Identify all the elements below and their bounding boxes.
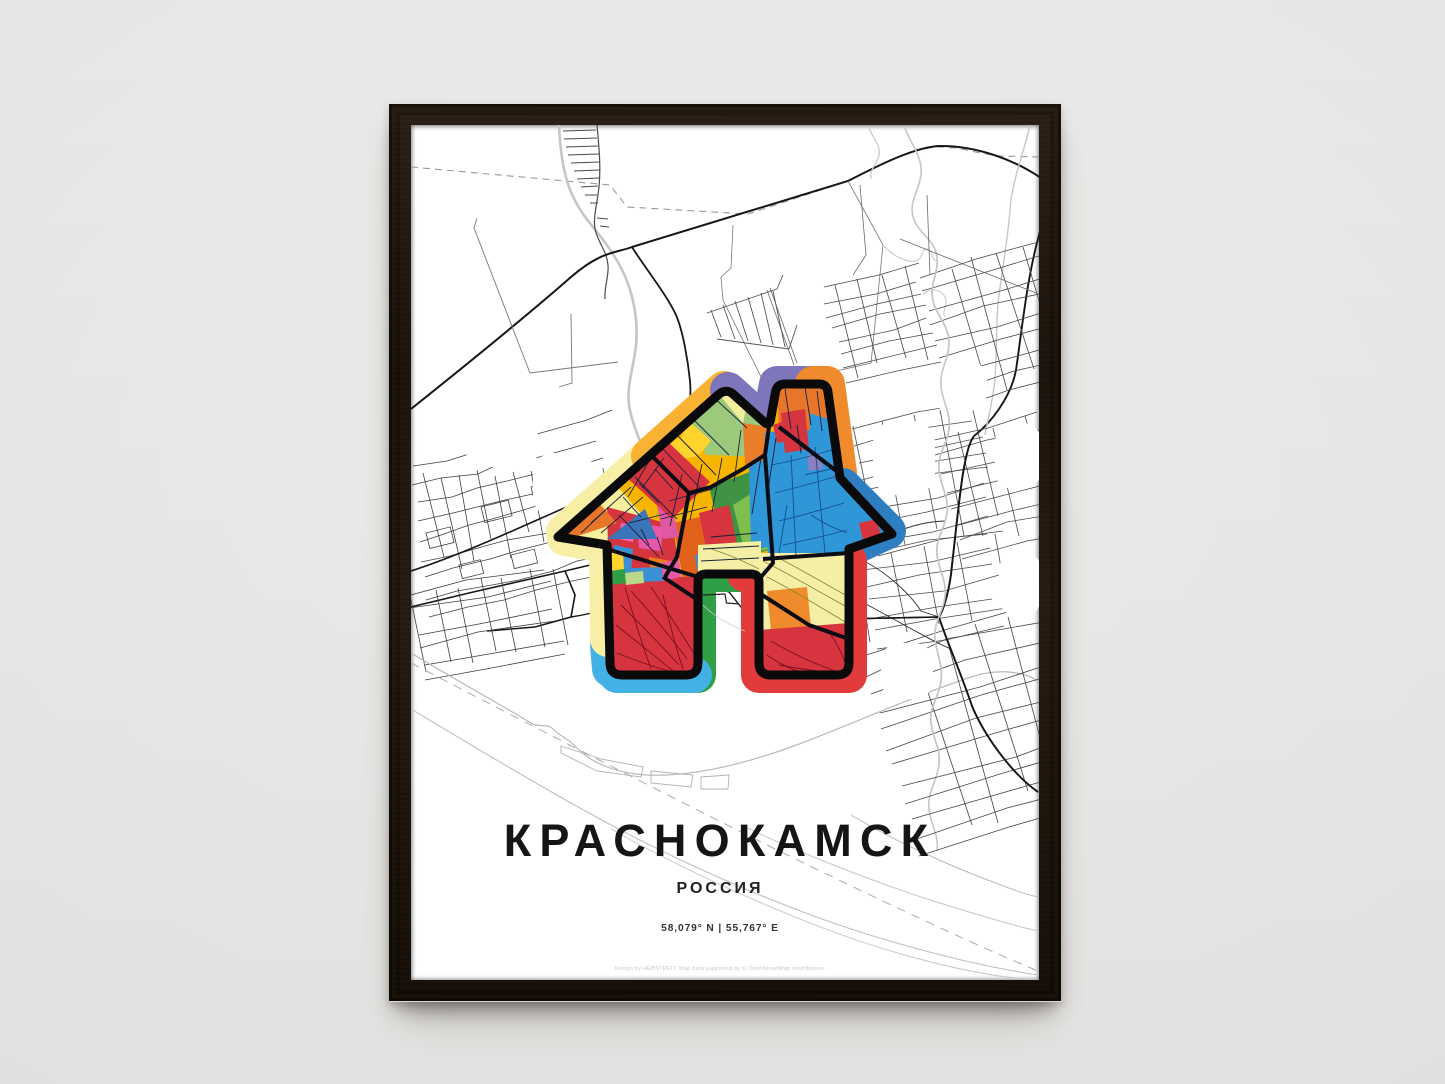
svg-text:РОССИЯ: РОССИЯ bbox=[676, 880, 763, 897]
svg-text:Design by HEBSTREIT, Map data: Design by HEBSTREIT, Map data supported … bbox=[615, 965, 826, 972]
svg-text:КРАСНОКАМСК: КРАСНОКАМСК bbox=[504, 815, 937, 866]
svg-text:58,079° N | 55,767° E: 58,079° N | 55,767° E bbox=[661, 923, 779, 934]
